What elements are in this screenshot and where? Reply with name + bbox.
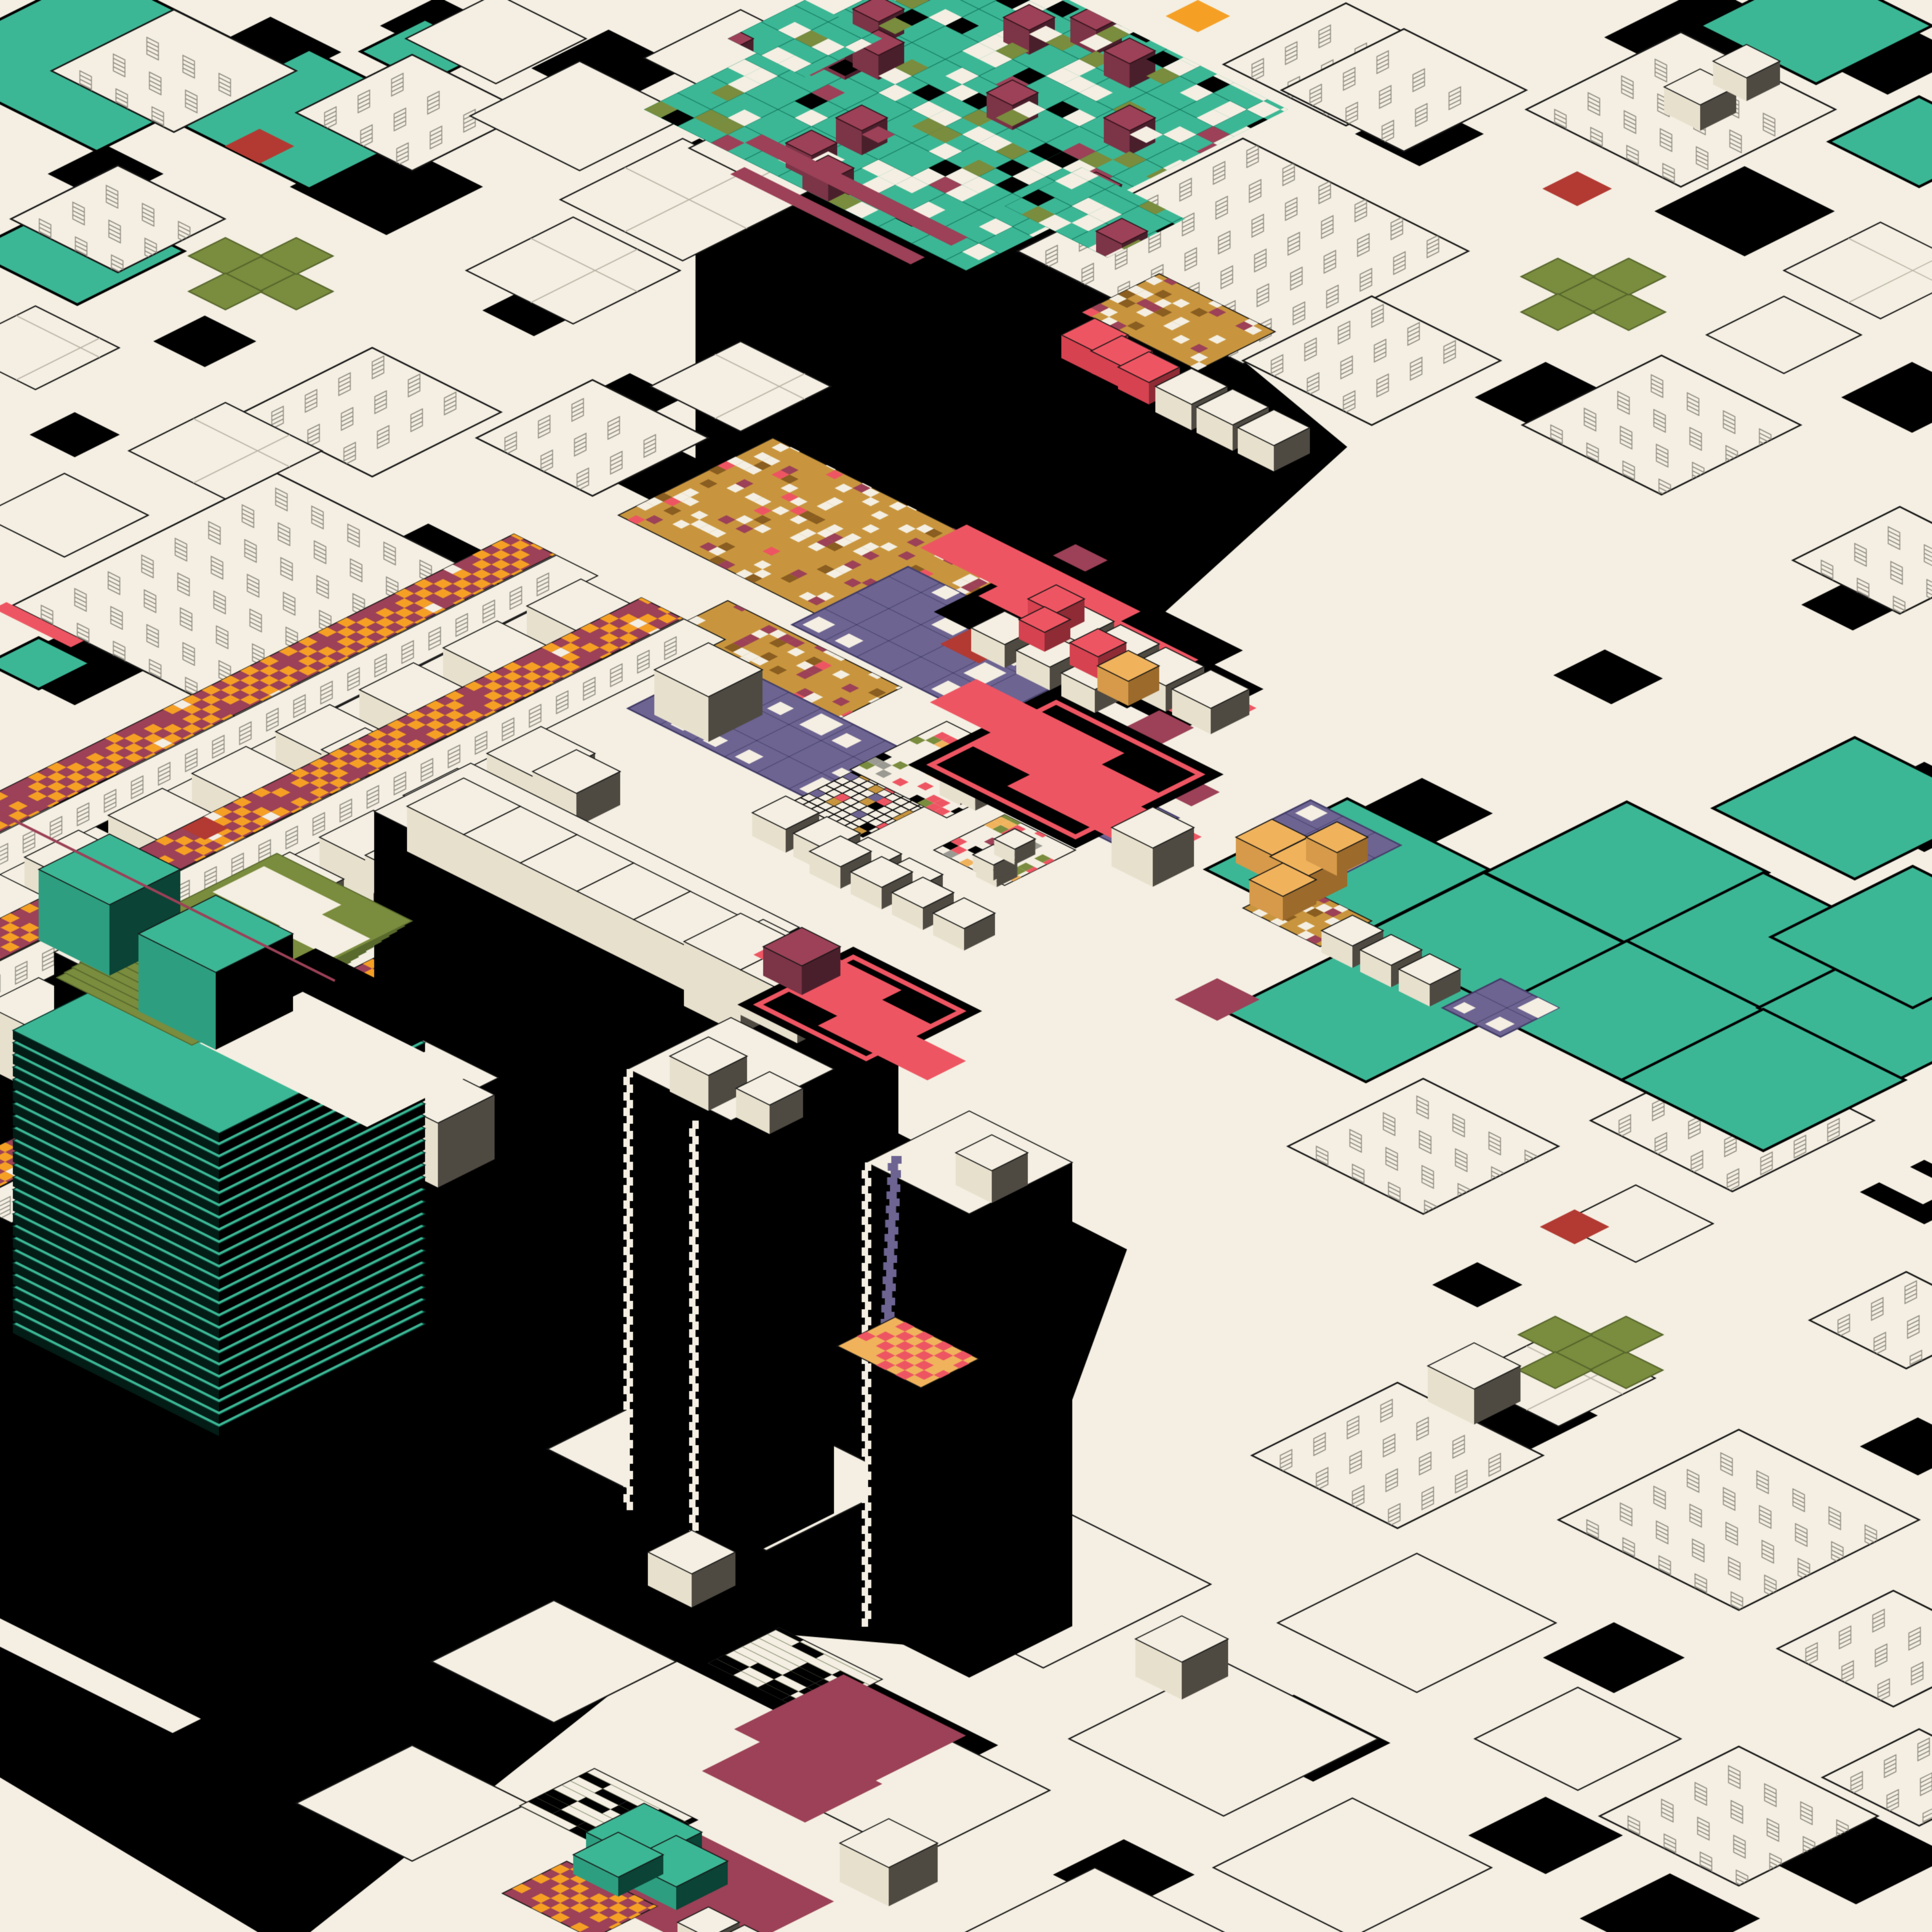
isometric-generative-city-canvas bbox=[0, 0, 1932, 1932]
artwork-frame bbox=[0, 0, 1932, 1932]
